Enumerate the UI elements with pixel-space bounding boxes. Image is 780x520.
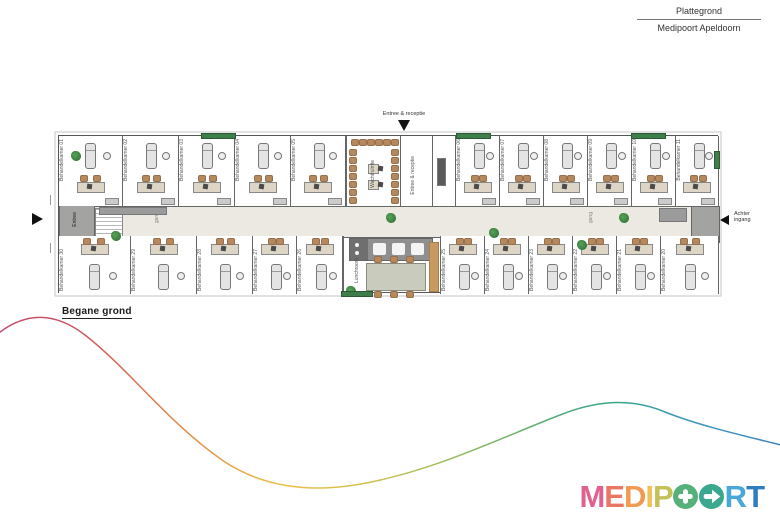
- room-label: Behandelkamer 23: [530, 249, 535, 291]
- room: Behandelkamer 27: [253, 236, 297, 294]
- chair-icon: [567, 175, 575, 182]
- room-label: Behandelkamer 24: [486, 249, 491, 291]
- chair-icon: [632, 238, 640, 245]
- chair-icon: [391, 173, 399, 180]
- plant-icon: [111, 231, 121, 241]
- chair-icon: [312, 238, 320, 245]
- logo-letter: T: [746, 481, 764, 512]
- chair-icon: [588, 238, 596, 245]
- chair-icon: [227, 238, 235, 245]
- stool-icon: [618, 152, 626, 160]
- room: Behandelkamer 04: [235, 136, 291, 206]
- chair-icon: [391, 181, 399, 188]
- chair-icon: [655, 175, 663, 182]
- stool-icon: [603, 272, 611, 280]
- corridor-counter-icon: [99, 207, 167, 215]
- stool-icon: [236, 272, 244, 280]
- logo-letter: P: [653, 481, 673, 512]
- lunchroom-label: Lunchroom: [355, 258, 360, 283]
- chair-icon: [699, 175, 707, 182]
- chair-icon: [640, 238, 648, 245]
- chair-icon: [456, 238, 464, 245]
- exam-table-icon: [474, 143, 485, 169]
- room-label: Behandelkamer 04: [236, 139, 241, 181]
- plant-icon: [619, 213, 629, 223]
- cabinet-icon: [701, 198, 715, 205]
- desk-icon: [676, 244, 704, 255]
- room: Behandelkamer 29: [131, 236, 197, 294]
- stool-icon: [471, 272, 479, 280]
- stool-icon: [701, 272, 709, 280]
- cabinet-icon: [482, 198, 496, 205]
- chair-icon: [479, 175, 487, 182]
- chair-icon: [390, 256, 398, 263]
- stool-icon: [274, 152, 282, 160]
- reception-room: [433, 136, 456, 206]
- chair-icon: [544, 238, 552, 245]
- chair-icon: [351, 139, 359, 146]
- planter-icon: [341, 291, 373, 297]
- cabinet-icon: [217, 198, 231, 205]
- chair-icon: [349, 189, 357, 196]
- exam-table-icon: [459, 264, 470, 290]
- planter-icon: [201, 133, 236, 139]
- chair-icon: [374, 291, 382, 298]
- chair-icon: [349, 181, 357, 188]
- desk-icon: [261, 244, 289, 255]
- chair-icon: [611, 175, 619, 182]
- room: Behandelkamer 02: [123, 136, 179, 206]
- cabinet-icon: [658, 198, 672, 205]
- chair-icon: [265, 175, 273, 182]
- stool-icon: [574, 152, 582, 160]
- exam-table-icon: [547, 264, 558, 290]
- top-entrance-arrow-icon: [398, 120, 410, 131]
- chair-icon: [515, 175, 523, 182]
- desk-icon: [137, 182, 165, 193]
- chair-icon: [349, 165, 357, 172]
- room: Behandelkamer 23: [529, 236, 573, 294]
- stool-icon: [705, 152, 713, 160]
- room: Behandelkamer 03: [179, 136, 235, 206]
- exam-table-icon: [685, 264, 696, 290]
- desk-icon: [508, 182, 536, 193]
- room: Behandelkamer 30: [59, 236, 131, 294]
- exam-table-icon: [591, 264, 602, 290]
- room-label: Behandelkamer 02: [124, 139, 129, 181]
- page: Plattegrond Medipoort Apeldoorn gang gan…: [0, 0, 780, 520]
- desk-icon: [464, 182, 492, 193]
- chair-icon: [359, 139, 367, 146]
- stool-icon: [218, 152, 226, 160]
- chair-icon: [391, 157, 399, 164]
- room-label: Behandelkamer 07: [501, 139, 506, 181]
- medipoort-logo: MEDIPRT: [579, 481, 764, 512]
- exam-table-icon: [694, 143, 705, 169]
- chair-icon: [680, 238, 688, 245]
- stool-icon: [283, 272, 291, 280]
- desk-icon: [493, 244, 521, 255]
- chair-icon: [690, 175, 698, 182]
- entrance-corridor-label: Entree & receptie: [411, 156, 416, 195]
- chair-icon: [367, 139, 375, 146]
- exam-table-icon: [146, 143, 157, 169]
- chair-icon: [166, 238, 174, 245]
- chair-icon: [83, 238, 91, 245]
- rear-entrance-label-2: ingang: [734, 217, 751, 223]
- corridor-label: gang: [589, 212, 594, 223]
- planter-icon: [714, 151, 720, 169]
- desk-icon: [683, 182, 711, 193]
- room-label: Behandelkamer 08: [545, 139, 550, 181]
- room: Behandelkamer 11: [676, 136, 719, 206]
- room: Behandelkamer 06: [456, 136, 500, 206]
- chair-icon: [209, 175, 217, 182]
- logo-letter: E: [604, 481, 624, 512]
- logo-letter: I: [645, 481, 653, 512]
- chair-icon: [93, 175, 101, 182]
- room-label: Behandelkamer 03: [180, 139, 185, 181]
- plant-icon: [71, 151, 81, 161]
- chair-icon: [153, 238, 161, 245]
- top-entrance-label: Entree & receptie: [374, 111, 434, 117]
- room: Behandelkamer 10: [632, 136, 676, 206]
- room-label: Behandelkamer 26: [298, 249, 303, 291]
- waiting-room-label: Wachtruimte: [371, 160, 376, 188]
- room-label: Behandelkamer 06: [457, 139, 462, 181]
- desk-icon: [537, 244, 565, 255]
- cabinet-icon: [273, 198, 287, 205]
- room-label: Behandelkamer 09: [589, 139, 594, 181]
- room: Behandelkamer 07: [500, 136, 544, 206]
- desk-icon: [596, 182, 624, 193]
- room-label: Behandelkamer 30: [60, 249, 65, 291]
- room-label: Behandelkamer 28: [198, 249, 203, 291]
- cabinet-icon: [161, 198, 175, 205]
- room-label: Behandelkamer 21: [618, 249, 623, 291]
- chair-icon: [391, 165, 399, 172]
- chair-icon: [349, 173, 357, 180]
- chair-icon: [391, 139, 399, 146]
- chair-icon: [596, 238, 604, 245]
- desk-icon: [625, 244, 653, 255]
- planter-icon: [631, 133, 666, 139]
- desk-icon: [306, 244, 334, 255]
- exam-table-icon: [518, 143, 529, 169]
- chair-icon: [153, 175, 161, 182]
- dimension-tick: [50, 195, 51, 205]
- room-label: Behandelkamer 11: [677, 139, 682, 181]
- cabinet-icon: [429, 242, 439, 292]
- stool-icon: [530, 152, 538, 160]
- chair-icon: [268, 238, 276, 245]
- lunch-table-icon: [366, 263, 426, 291]
- room: Behandelkamer 28: [197, 236, 253, 294]
- room-label: Behandelkamer 05: [292, 139, 297, 181]
- entrance-corridor: [401, 136, 433, 206]
- room: Behandelkamer 01: [59, 136, 123, 206]
- cabinet-icon: [328, 198, 342, 205]
- doc-subtitle: Medipoort Apeldoorn: [634, 20, 764, 33]
- chair-icon: [309, 175, 317, 182]
- chair-icon: [320, 175, 328, 182]
- exam-table-icon: [202, 143, 213, 169]
- room: Behandelkamer 20: [661, 236, 719, 294]
- room: Behandelkamer 05: [291, 136, 346, 206]
- floor-plan: gang gang Wachtruimte Entree & receptie: [58, 135, 718, 293]
- room-label: Behandelkamer 27: [254, 249, 259, 291]
- exam-table-icon: [258, 143, 269, 169]
- exam-table-icon: [503, 264, 514, 290]
- logo-o-plus-icon: [673, 484, 698, 509]
- stool-icon: [662, 152, 670, 160]
- desk-icon: [211, 244, 239, 255]
- chair-icon: [471, 175, 479, 182]
- stool-icon: [515, 272, 523, 280]
- storage-niche-icon: [659, 208, 687, 222]
- room-label: Behandelkamer 29: [132, 249, 137, 291]
- chair-icon: [198, 175, 206, 182]
- exam-table-icon: [220, 264, 231, 290]
- chair-icon: [321, 238, 329, 245]
- exam-table-icon: [85, 143, 96, 169]
- exam-table-icon: [635, 264, 646, 290]
- logo-letter: D: [624, 481, 645, 512]
- floor-name: Begane grond: [62, 306, 132, 319]
- desk-icon: [193, 182, 221, 193]
- chair-icon: [603, 175, 611, 182]
- stool-icon: [329, 152, 337, 160]
- doc-title: Plattegrond: [634, 6, 764, 19]
- cabinet-icon: [570, 198, 584, 205]
- chair-icon: [216, 238, 224, 245]
- chair-icon: [647, 175, 655, 182]
- building: gang gang Wachtruimte Entree & receptie: [58, 135, 718, 293]
- chair-icon: [406, 291, 414, 298]
- room: Behandelkamer 09: [588, 136, 632, 206]
- rear-entrance-arrow-icon: [720, 215, 729, 225]
- desk-icon: [640, 182, 668, 193]
- chair-icon: [374, 256, 382, 263]
- room: Behandelkamer 24: [485, 236, 529, 294]
- left-entrance-label: Entree: [73, 212, 78, 227]
- chair-icon: [500, 238, 508, 245]
- chair-icon: [254, 175, 262, 182]
- exam-table-icon: [562, 143, 573, 169]
- exam-table-icon: [316, 264, 327, 290]
- planter-icon: [456, 133, 491, 139]
- chair-icon: [406, 256, 414, 263]
- chair-icon: [142, 175, 150, 182]
- cabinet-icon: [614, 198, 628, 205]
- room-label: Behandelkamer 20: [662, 249, 667, 291]
- room-label: Behandelkamer 22: [574, 249, 579, 291]
- room-label: Behandelkamer 25: [442, 249, 447, 291]
- left-entrance-arrow-icon: [32, 213, 43, 225]
- exam-table-icon: [158, 264, 169, 290]
- desk-icon: [304, 182, 332, 193]
- chair-icon: [349, 197, 357, 204]
- dimension-tick: [50, 243, 51, 253]
- plant-icon: [489, 228, 499, 238]
- desk-icon: [150, 244, 178, 255]
- stool-icon: [177, 272, 185, 280]
- chair-icon: [391, 197, 399, 204]
- chair-icon: [508, 238, 516, 245]
- chair-icon: [559, 175, 567, 182]
- reception-desk-icon: [437, 158, 446, 186]
- room: Behandelkamer 21: [617, 236, 661, 294]
- cabinet-icon: [526, 198, 540, 205]
- desk-icon: [552, 182, 580, 193]
- chair-icon: [349, 149, 357, 156]
- exam-table-icon: [650, 143, 661, 169]
- desk-icon: [77, 182, 105, 193]
- room: Behandelkamer 25: [441, 236, 485, 294]
- title-block: Plattegrond Medipoort Apeldoorn: [634, 6, 764, 33]
- stool-icon: [647, 272, 655, 280]
- room: Behandelkamer 26: [297, 236, 343, 294]
- cabinet-icon: [105, 198, 119, 205]
- chair-icon: [349, 157, 357, 164]
- room-label: Behandelkamer 10: [633, 139, 638, 181]
- chair-icon: [80, 175, 88, 182]
- chair-icon: [391, 189, 399, 196]
- chair-icon: [552, 238, 560, 245]
- stool-icon: [162, 152, 170, 160]
- logo-letter: M: [579, 481, 604, 512]
- room-label: Behandelkamer 01: [60, 139, 65, 181]
- chair-icon: [97, 238, 105, 245]
- desk-icon: [81, 244, 109, 255]
- chair-icon: [391, 149, 399, 156]
- stool-icon: [559, 272, 567, 280]
- chair-icon: [464, 238, 472, 245]
- exam-table-icon: [271, 264, 282, 290]
- plant-icon: [577, 240, 587, 250]
- desk-icon: [249, 182, 277, 193]
- stool-icon: [103, 152, 111, 160]
- wave-path: [0, 317, 780, 488]
- plant-icon: [386, 213, 396, 223]
- chair-icon: [276, 238, 284, 245]
- desk-icon: [449, 244, 477, 255]
- logo-letter: R: [725, 481, 746, 512]
- stool-icon: [329, 272, 337, 280]
- chair-icon: [523, 175, 531, 182]
- chair-icon: [692, 238, 700, 245]
- chair-icon: [390, 291, 398, 298]
- logo-o-arrow-icon: [699, 484, 724, 509]
- chair-icon: [383, 139, 391, 146]
- room: Behandelkamer 08: [544, 136, 588, 206]
- exam-table-icon: [606, 143, 617, 169]
- exam-table-icon: [314, 143, 325, 169]
- stool-icon: [486, 152, 494, 160]
- chair-icon: [375, 139, 383, 146]
- stool-icon: [109, 272, 117, 280]
- exam-table-icon: [89, 264, 100, 290]
